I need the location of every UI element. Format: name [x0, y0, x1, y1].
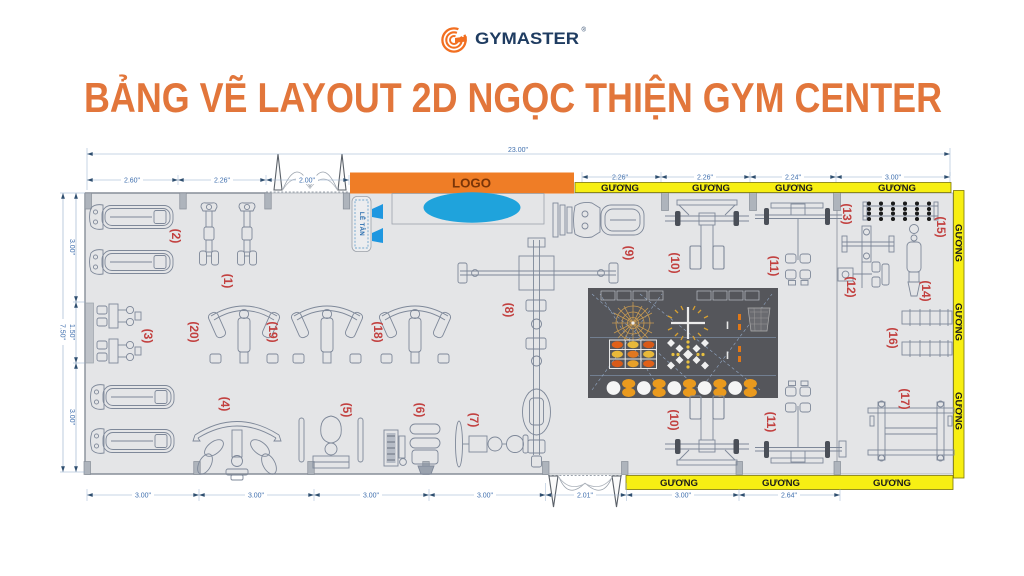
svg-text:GƯƠNG: GƯƠNG: [601, 183, 639, 193]
svg-text:3.00": 3.00": [68, 409, 75, 426]
svg-text:2.24": 2.24": [785, 175, 802, 182]
svg-text:3.00": 3.00": [363, 493, 380, 500]
svg-text:(1): (1): [221, 274, 235, 289]
svg-text:(7): (7): [467, 413, 481, 428]
svg-text:GYMASTER: GYMASTER: [475, 30, 579, 48]
svg-text:GƯƠNG: GƯƠNG: [692, 183, 730, 193]
svg-text:(14): (14): [919, 280, 933, 301]
svg-text:2.26": 2.26": [697, 175, 714, 182]
svg-text:3.00": 3.00": [135, 493, 152, 500]
svg-text:2.64": 2.64": [781, 493, 798, 500]
svg-text:GƯƠNG: GƯƠNG: [954, 224, 964, 262]
svg-text:(5): (5): [340, 403, 354, 418]
svg-text:GƯƠNG: GƯƠNG: [954, 303, 964, 341]
svg-text:(11): (11): [764, 412, 778, 433]
svg-text:(10): (10): [667, 409, 681, 430]
svg-text:2.26": 2.26": [214, 178, 231, 185]
svg-text:(13): (13): [840, 203, 854, 224]
svg-text:(18): (18): [371, 321, 385, 342]
svg-text:1.50": 1.50": [68, 324, 75, 341]
svg-text:BẢNG VẼ LAYOUT 2D NGỌC THIỆN G: BẢNG VẼ LAYOUT 2D NGỌC THIỆN GYM CENTER: [84, 73, 942, 121]
svg-text:LOGO: LOGO: [452, 177, 491, 191]
svg-text:3.00": 3.00": [885, 175, 902, 182]
svg-text:(15): (15): [934, 216, 948, 237]
svg-text:3.00": 3.00": [68, 239, 75, 256]
svg-text:GƯƠNG: GƯƠNG: [762, 478, 800, 488]
svg-text:LỄ TÂN: LỄ TÂN: [358, 212, 365, 236]
svg-text:(17): (17): [898, 388, 912, 409]
svg-text:(19): (19): [266, 321, 280, 342]
svg-text:®: ®: [582, 27, 587, 34]
svg-text:7.50": 7.50": [59, 324, 66, 341]
svg-text:2.26": 2.26": [612, 175, 629, 182]
svg-text:2.00": 2.00": [299, 178, 316, 185]
svg-text:(3): (3): [141, 329, 155, 344]
svg-text:23.00": 23.00": [508, 147, 529, 154]
svg-text:(8): (8): [502, 303, 516, 318]
svg-text:2.60": 2.60": [124, 178, 141, 185]
svg-text:(2): (2): [169, 229, 183, 244]
svg-text:(10): (10): [668, 252, 682, 273]
svg-text:GƯƠNG: GƯƠNG: [878, 183, 916, 193]
svg-text:3.00": 3.00": [248, 493, 265, 500]
svg-text:(20): (20): [187, 321, 201, 342]
svg-text:3.00": 3.00": [675, 493, 692, 500]
svg-text:GƯƠNG: GƯƠNG: [873, 478, 911, 488]
svg-text:2.01": 2.01": [577, 493, 594, 500]
svg-text:GƯƠNG: GƯƠNG: [954, 392, 964, 430]
svg-text:(9): (9): [622, 246, 636, 261]
svg-text:GƯƠNG: GƯƠNG: [660, 478, 698, 488]
svg-text:(16): (16): [886, 327, 900, 348]
svg-text:(12): (12): [844, 276, 858, 297]
svg-text:(4): (4): [218, 397, 232, 412]
svg-text:(6): (6): [413, 403, 427, 418]
svg-text:3.00": 3.00": [477, 493, 494, 500]
svg-text:GƯƠNG: GƯƠNG: [775, 183, 813, 193]
svg-text:(11): (11): [767, 256, 781, 277]
